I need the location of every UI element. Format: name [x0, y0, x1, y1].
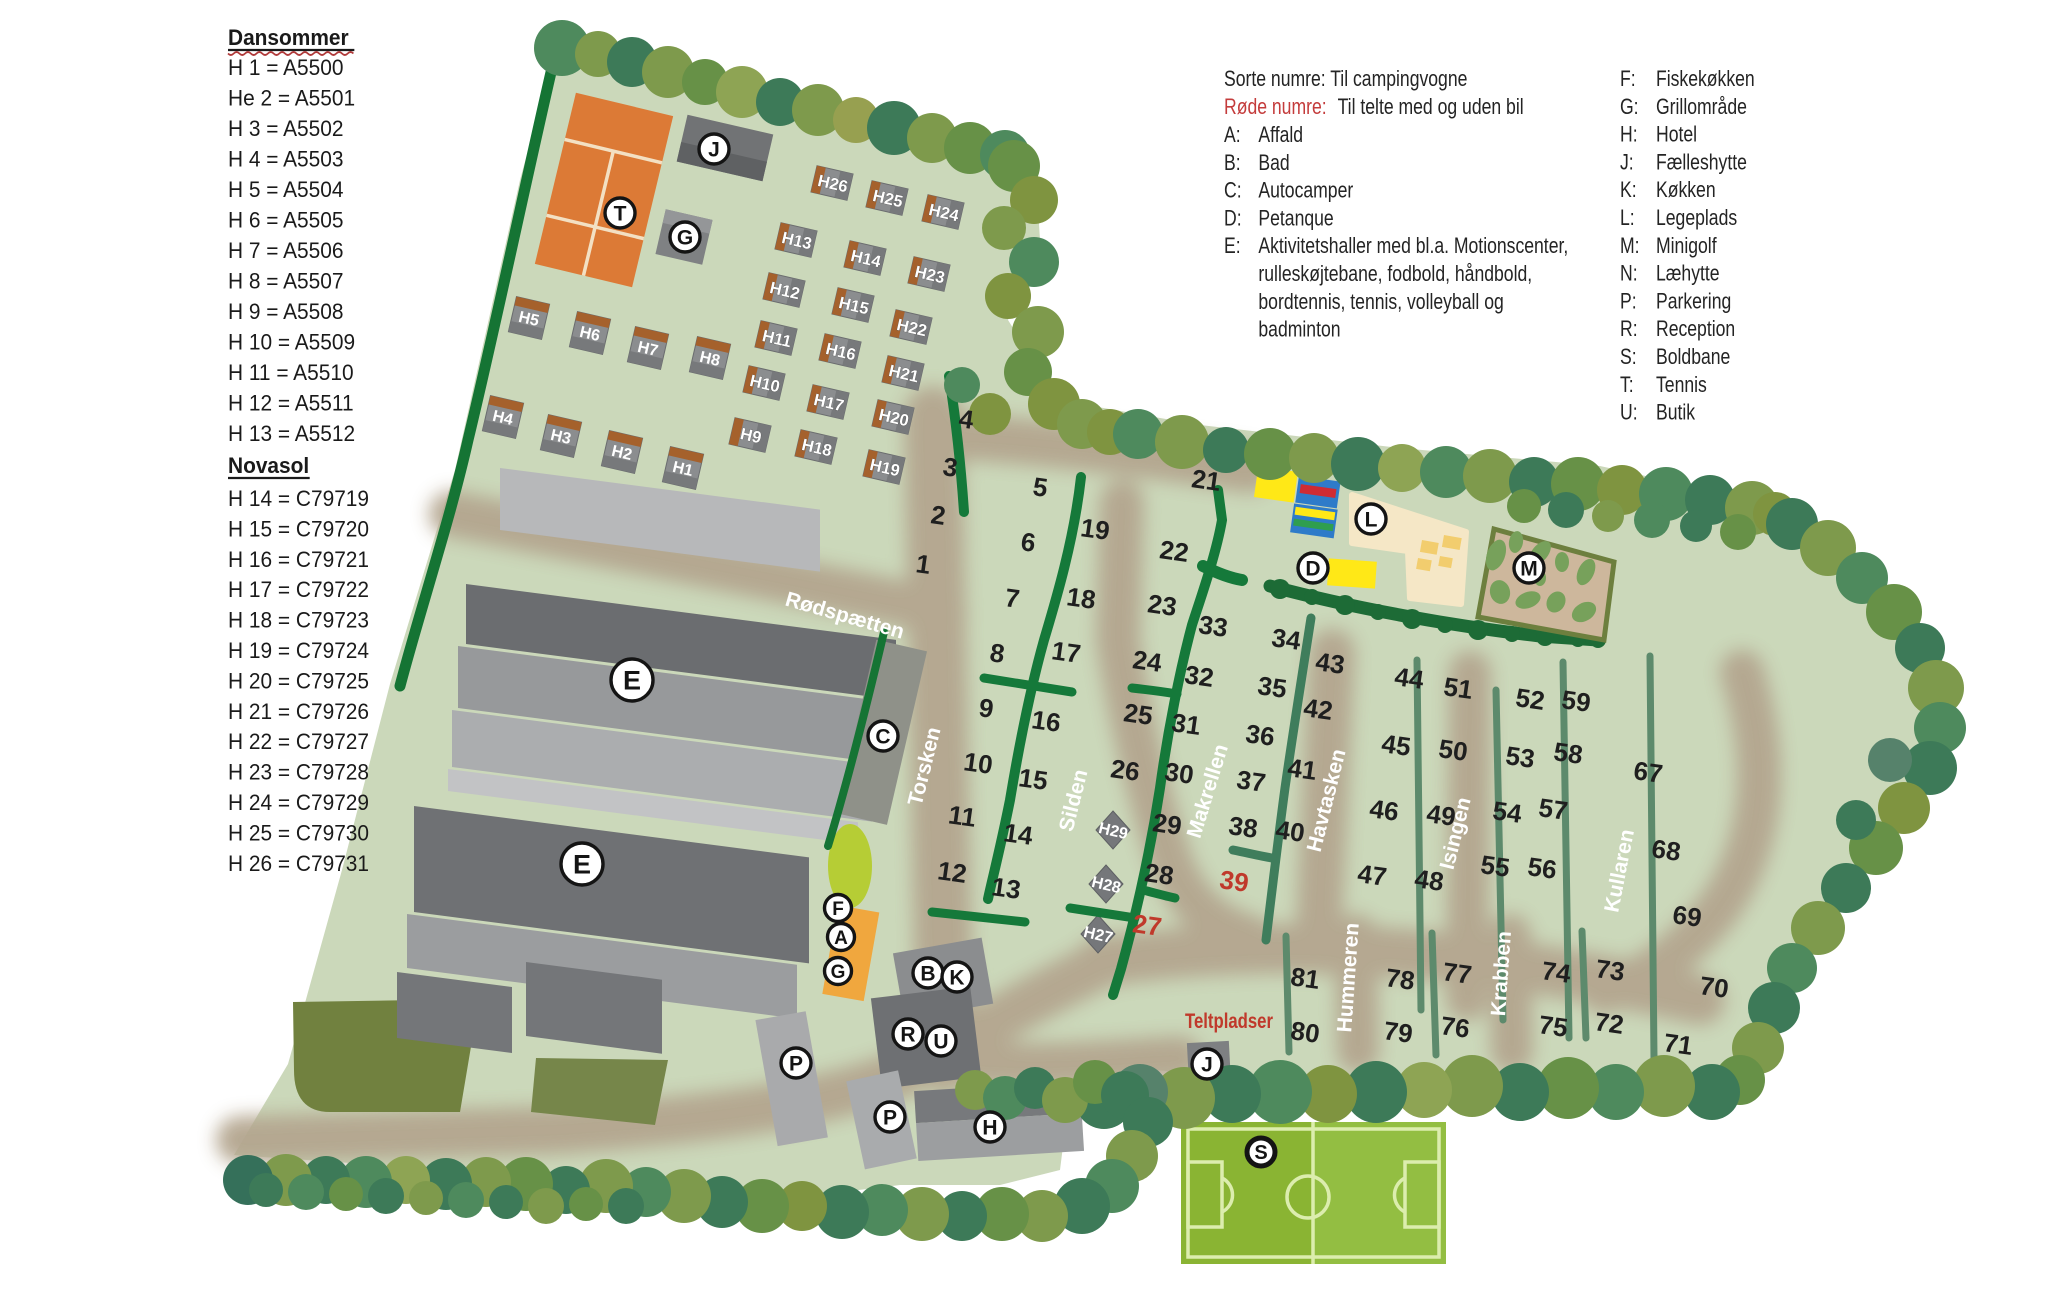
svg-text:Reception: Reception — [1656, 317, 1735, 341]
svg-text:badminton: badminton — [1258, 318, 1340, 342]
svg-text:31: 31 — [1170, 707, 1203, 741]
svg-text:11: 11 — [947, 799, 978, 833]
svg-text:Autocamper: Autocamper — [1258, 179, 1353, 203]
svg-text:43: 43 — [1314, 646, 1347, 680]
svg-text:Køkken: Køkken — [1656, 178, 1716, 202]
svg-text:15: 15 — [1017, 762, 1050, 796]
svg-text:74: 74 — [1540, 955, 1573, 989]
svg-text:81: 81 — [1289, 961, 1322, 995]
svg-text:68: 68 — [1650, 833, 1683, 867]
svg-text:36: 36 — [1244, 718, 1277, 752]
svg-text:76: 76 — [1439, 1010, 1472, 1044]
svg-text:67: 67 — [1632, 755, 1665, 789]
svg-text:H 16 = C79721: H 16 = C79721 — [228, 547, 369, 572]
svg-text:C: C — [875, 726, 890, 749]
svg-text:J: J — [708, 139, 720, 162]
svg-text:21: 21 — [1190, 463, 1223, 497]
svg-text:29: 29 — [1151, 807, 1184, 841]
svg-text:G: G — [831, 962, 846, 983]
svg-text:H 1 = A5500: H 1 = A5500 — [228, 56, 344, 81]
svg-text:48: 48 — [1413, 863, 1446, 897]
svg-text:Grillområde: Grillområde — [1656, 95, 1747, 119]
svg-text:70: 70 — [1698, 970, 1731, 1004]
svg-text:B:: B: — [1224, 151, 1241, 175]
svg-text:H 15 = C79720: H 15 = C79720 — [228, 517, 369, 542]
svg-text:H 26 = C79731: H 26 = C79731 — [228, 851, 369, 876]
svg-text:38: 38 — [1227, 810, 1260, 844]
svg-text:47: 47 — [1356, 858, 1389, 892]
svg-text:23: 23 — [1146, 588, 1179, 622]
svg-text:Parkering: Parkering — [1656, 290, 1731, 314]
svg-text:A:: A: — [1224, 123, 1241, 147]
svg-text:H 7 = A5506: H 7 = A5506 — [228, 239, 344, 264]
svg-text:Butik: Butik — [1656, 401, 1695, 425]
svg-text:Affald: Affald — [1258, 123, 1303, 147]
svg-text:Sorte numre: Til campingvogne: Sorte numre: Til campingvogne — [1224, 67, 1467, 91]
svg-text:M:: M: — [1620, 234, 1640, 258]
svg-text:Petanque: Petanque — [1258, 207, 1333, 231]
svg-text:G:: G: — [1620, 95, 1639, 119]
svg-text:19: 19 — [1079, 512, 1112, 546]
svg-text:H 18 = C79723: H 18 = C79723 — [228, 608, 369, 633]
svg-text:59: 59 — [1560, 684, 1593, 718]
svg-text:P: P — [883, 1107, 897, 1130]
svg-text:Boldbane: Boldbane — [1656, 345, 1730, 369]
svg-text:Fiskekøkken: Fiskekøkken — [1656, 67, 1755, 91]
svg-text:K:: K: — [1620, 178, 1637, 202]
svg-text:U: U — [933, 1031, 948, 1054]
svg-text:Legeplads: Legeplads — [1656, 206, 1737, 230]
svg-text:rulleskøjtebane, fodbold, hånd: rulleskøjtebane, fodbold, håndbold, — [1258, 262, 1532, 286]
svg-text:54: 54 — [1491, 795, 1524, 829]
svg-text:E:: E: — [1224, 234, 1241, 258]
svg-text:Teltpladser: Teltpladser — [1185, 1010, 1273, 1033]
svg-text:79: 79 — [1382, 1015, 1415, 1049]
svg-text:H 10 = A5509: H 10 = A5509 — [228, 330, 355, 355]
svg-text:H 13 = A5512: H 13 = A5512 — [228, 422, 355, 447]
svg-text:45: 45 — [1380, 728, 1413, 762]
svg-text:U:: U: — [1620, 401, 1638, 425]
svg-text:78: 78 — [1384, 962, 1417, 996]
svg-text:L: L — [1365, 509, 1378, 532]
svg-text:30: 30 — [1163, 756, 1196, 790]
svg-text:Røde numre:: Røde numre: — [1224, 95, 1327, 119]
svg-text:H 25 = C79730: H 25 = C79730 — [228, 821, 369, 846]
svg-text:Minigolf: Minigolf — [1656, 234, 1717, 258]
svg-text:42: 42 — [1302, 692, 1335, 726]
svg-text:H:: H: — [1620, 123, 1638, 147]
svg-text:52: 52 — [1514, 682, 1547, 716]
svg-text:K: K — [949, 967, 964, 990]
svg-text:37: 37 — [1235, 764, 1268, 798]
svg-text:75: 75 — [1537, 1009, 1570, 1043]
svg-text:H 12 = A5511: H 12 = A5511 — [228, 391, 354, 416]
svg-text:S: S — [1254, 1142, 1267, 1164]
svg-text:He 2 = A5501: He 2 = A5501 — [228, 86, 355, 111]
svg-text:58: 58 — [1552, 736, 1585, 770]
svg-text:Bad: Bad — [1258, 151, 1289, 175]
svg-text:T: T — [614, 203, 627, 226]
svg-text:55: 55 — [1479, 849, 1512, 883]
svg-text:H 11 = A5510: H 11 = A5510 — [228, 361, 354, 386]
svg-text:39: 39 — [1218, 864, 1251, 898]
svg-text:69: 69 — [1671, 899, 1704, 933]
svg-text:H 21 = C79726: H 21 = C79726 — [228, 699, 369, 724]
svg-text:73: 73 — [1594, 953, 1627, 987]
svg-text:E: E — [623, 666, 641, 696]
svg-text:F: F — [832, 899, 844, 920]
svg-text:bordtennis, tennis, volleyball: bordtennis, tennis, volleyball og — [1258, 290, 1503, 314]
svg-text:Fælleshytte: Fælleshytte — [1656, 151, 1747, 175]
svg-text:J:: J: — [1620, 151, 1634, 175]
svg-text:B: B — [920, 963, 935, 986]
svg-text:16: 16 — [1030, 704, 1063, 738]
svg-text:26: 26 — [1109, 753, 1142, 787]
svg-text:M: M — [1520, 558, 1538, 581]
svg-text:H 20 = C79725: H 20 = C79725 — [228, 669, 369, 694]
svg-text:18: 18 — [1065, 581, 1098, 615]
svg-text:17: 17 — [1050, 635, 1083, 669]
svg-text:14: 14 — [1002, 817, 1035, 851]
svg-text:46: 46 — [1368, 793, 1401, 827]
svg-text:H 22 = C79727: H 22 = C79727 — [228, 730, 369, 755]
svg-text:40: 40 — [1274, 814, 1307, 848]
svg-text:32: 32 — [1183, 659, 1216, 693]
svg-text:35: 35 — [1256, 670, 1289, 704]
svg-text:H 19 = C79724: H 19 = C79724 — [228, 639, 369, 664]
svg-text:71: 71 — [1662, 1027, 1695, 1061]
svg-text:41: 41 — [1286, 752, 1319, 786]
svg-text:25: 25 — [1122, 697, 1155, 731]
svg-text:F:: F: — [1620, 67, 1636, 91]
svg-text:D:: D: — [1224, 207, 1242, 231]
svg-text:50: 50 — [1437, 733, 1470, 767]
svg-text:R: R — [900, 1024, 915, 1047]
svg-text:P:: P: — [1620, 290, 1637, 314]
svg-text:C:: C: — [1224, 179, 1242, 203]
svg-text:H 5 = A5504: H 5 = A5504 — [228, 178, 344, 203]
svg-text:Læhytte: Læhytte — [1656, 262, 1720, 286]
svg-text:A: A — [834, 928, 848, 949]
svg-text:H 14 = C79719: H 14 = C79719 — [228, 487, 369, 512]
svg-text:H 4 = A5503: H 4 = A5503 — [228, 147, 344, 172]
svg-text:80: 80 — [1289, 1015, 1322, 1049]
svg-text:13: 13 — [990, 871, 1023, 905]
svg-text:Novasol: Novasol — [228, 454, 309, 479]
svg-text:H 9 = A5508: H 9 = A5508 — [228, 300, 344, 325]
svg-text:22: 22 — [1158, 534, 1191, 568]
svg-text:L:: L: — [1620, 206, 1635, 230]
svg-text:H 6 = A5505: H 6 = A5505 — [228, 208, 344, 233]
svg-text:72: 72 — [1593, 1006, 1626, 1040]
svg-text:Dansommer: Dansommer — [228, 26, 349, 51]
svg-text:T:: T: — [1620, 373, 1634, 397]
svg-text:24: 24 — [1131, 644, 1164, 678]
svg-text:Hotel: Hotel — [1656, 123, 1697, 147]
svg-text:34: 34 — [1270, 622, 1303, 656]
svg-text:57: 57 — [1537, 792, 1570, 826]
svg-text:44: 44 — [1393, 661, 1426, 695]
svg-text:49: 49 — [1425, 798, 1458, 832]
svg-text:51: 51 — [1442, 671, 1475, 705]
svg-text:E: E — [573, 850, 591, 880]
svg-text:Aktivitetshaller med bl.a. Mot: Aktivitetshaller med bl.a. Motionscenter… — [1258, 234, 1568, 258]
svg-text:Tennis: Tennis — [1656, 373, 1707, 397]
svg-text:77: 77 — [1441, 956, 1474, 990]
svg-text:S:: S: — [1620, 345, 1637, 369]
svg-text:H 17 = C79722: H 17 = C79722 — [228, 578, 369, 603]
svg-text:G: G — [677, 227, 693, 250]
svg-text:12: 12 — [936, 855, 969, 889]
svg-text:28: 28 — [1143, 857, 1176, 891]
svg-text:H 23 = C79728: H 23 = C79728 — [228, 760, 369, 785]
svg-text:H 8 = A5507: H 8 = A5507 — [228, 269, 344, 294]
svg-text:P: P — [789, 1053, 803, 1076]
svg-text:N:: N: — [1620, 262, 1638, 286]
svg-text:10: 10 — [962, 746, 995, 780]
svg-text:R:: R: — [1620, 317, 1638, 341]
svg-text:H: H — [982, 1117, 997, 1140]
svg-text:D: D — [1305, 558, 1320, 581]
svg-text:J: J — [1201, 1054, 1213, 1077]
svg-text:27: 27 — [1131, 908, 1164, 942]
svg-text:56: 56 — [1526, 851, 1559, 885]
svg-text:53: 53 — [1504, 740, 1537, 774]
svg-text:33: 33 — [1197, 609, 1230, 643]
svg-text:H 24 = C79729: H 24 = C79729 — [228, 791, 369, 816]
svg-text:H 3 = A5502: H 3 = A5502 — [228, 117, 344, 142]
svg-text:Til telte med og uden bil: Til telte med og uden bil — [1338, 95, 1524, 119]
